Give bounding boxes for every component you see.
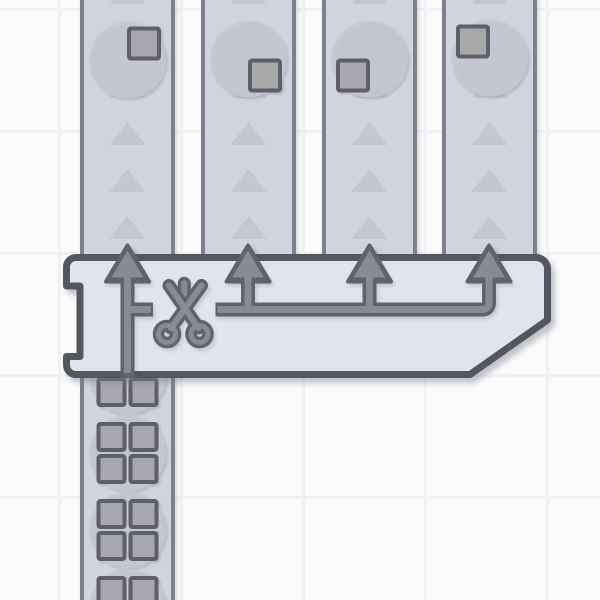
shape-item-square-full: [89, 492, 166, 569]
belt-arrow-icon: [472, 0, 508, 4]
quad-cutter-machine[interactable]: [66, 246, 547, 379]
belt-arrow-icon: [352, 0, 388, 4]
shape-item-square-quarter-top-right: [89, 22, 166, 99]
game-viewport: [0, 0, 600, 600]
belt-arrow-icon: [231, 0, 267, 4]
shape-item-square-full: [89, 415, 166, 492]
map-grid-background[interactable]: [0, 0, 600, 600]
belt-arrow-icon: [110, 0, 146, 4]
shape-item-square-quarter-bottom-right: [210, 21, 287, 98]
shape-item-square-quarter-top-left: [451, 20, 528, 97]
shape-item-square-quarter-bottom-left: [331, 21, 408, 98]
